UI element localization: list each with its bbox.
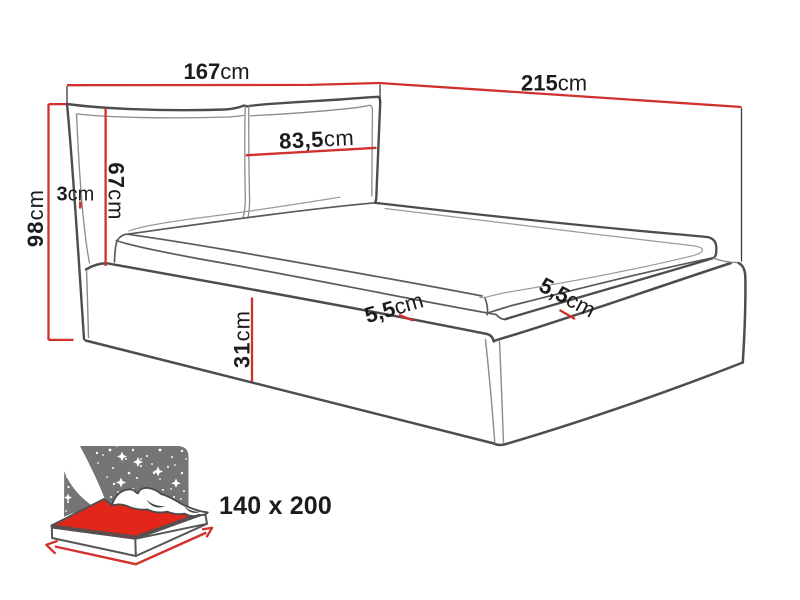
svg-text:215cm: 215cm	[521, 71, 587, 96]
svg-text:3cm: 3cm	[57, 184, 95, 206]
svg-text:140 x 200: 140 x 200	[219, 492, 332, 520]
svg-text:67cm: 67cm	[104, 162, 129, 220]
svg-text:98cm: 98cm	[23, 189, 48, 247]
svg-text:83,5cm: 83,5cm	[278, 125, 354, 154]
svg-text:167cm: 167cm	[183, 59, 249, 84]
svg-text:31cm: 31cm	[230, 310, 255, 368]
